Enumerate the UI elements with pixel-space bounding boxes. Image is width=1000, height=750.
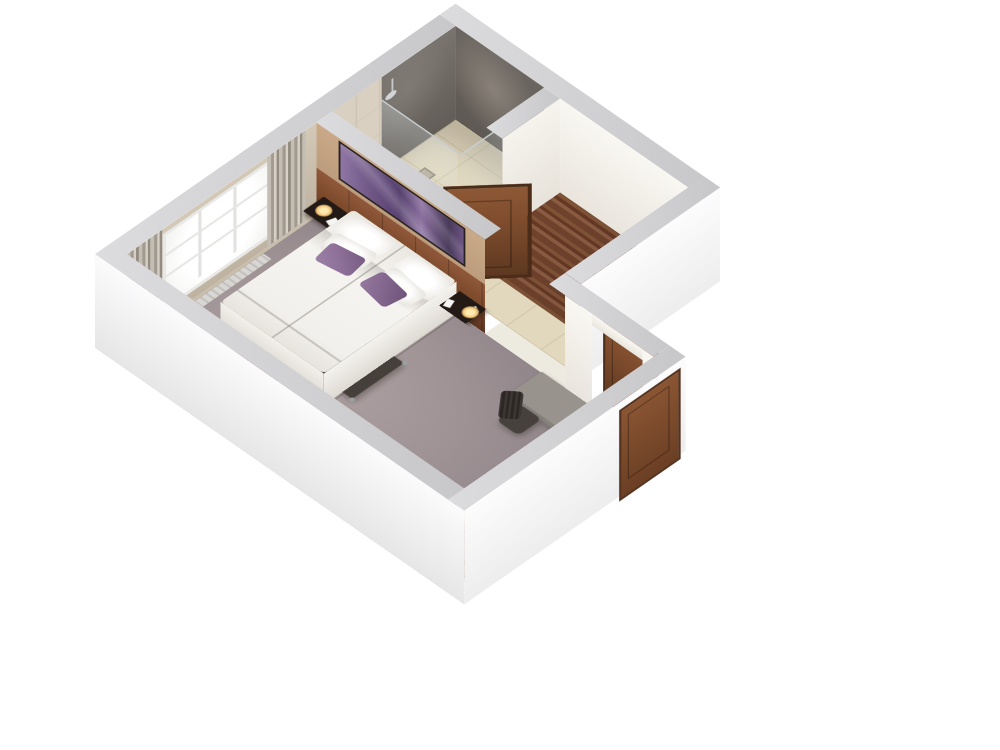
entrance-door-panel xyxy=(628,385,670,479)
plan-3d-scene xyxy=(95,92,839,609)
window-mullion xyxy=(233,186,236,253)
office-chair-back xyxy=(498,390,524,419)
window-mullion xyxy=(198,211,201,278)
scene-caption: 3D cutaway floor plan of a hotel guest r… xyxy=(0,0,1,1)
floorplan-render: 3D cutaway floor plan of a hotel guest r… xyxy=(0,0,1000,750)
notepad xyxy=(443,299,455,308)
